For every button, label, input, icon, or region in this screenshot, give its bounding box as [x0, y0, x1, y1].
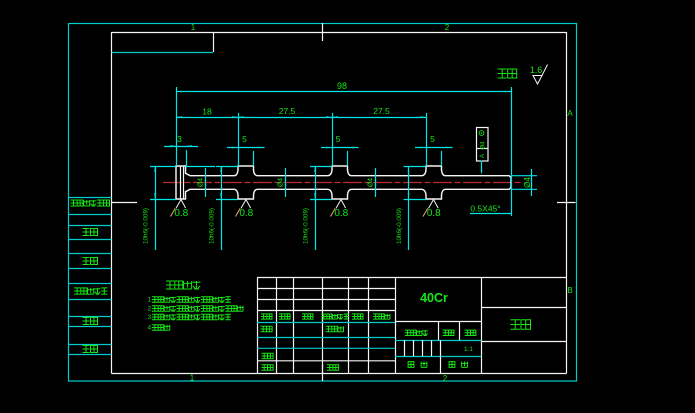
- svg-text:10h6(-0.009): 10h6(-0.009): [303, 208, 310, 244]
- svg-text:27.5: 27.5: [373, 106, 390, 116]
- svg-text:98: 98: [337, 81, 347, 91]
- svg-text:27.5: 27.5: [279, 106, 296, 116]
- svg-text:A: A: [567, 109, 573, 118]
- svg-text:Ø4: Ø4: [368, 178, 375, 187]
- svg-text:3: 3: [177, 134, 182, 144]
- svg-text:1: 1: [190, 374, 195, 383]
- svg-text:0.8: 0.8: [239, 208, 253, 219]
- svg-text:10h6(-0.009): 10h6(-0.009): [209, 208, 216, 244]
- svg-text:0.8: 0.8: [334, 208, 348, 219]
- svg-text:5: 5: [336, 134, 341, 144]
- svg-text:A: A: [480, 154, 486, 158]
- svg-text:Ø4: Ø4: [481, 141, 487, 150]
- svg-text:2: 2: [443, 374, 448, 383]
- svg-text:5: 5: [242, 134, 247, 144]
- svg-text:B: B: [567, 286, 572, 295]
- svg-text:Ø4: Ø4: [523, 177, 532, 188]
- svg-text:0.8: 0.8: [427, 208, 441, 219]
- svg-text:2: 2: [445, 23, 450, 32]
- svg-text:0.8: 0.8: [174, 208, 188, 219]
- svg-text:1:1: 1:1: [464, 346, 473, 353]
- svg-text:5: 5: [430, 134, 435, 144]
- svg-text:18: 18: [202, 107, 212, 117]
- svg-text:40Cr: 40Cr: [420, 291, 448, 305]
- svg-text:Ø4: Ø4: [198, 178, 205, 187]
- svg-text:10h6(-0.009): 10h6(-0.009): [143, 208, 150, 244]
- svg-text:0.5X45°: 0.5X45°: [470, 204, 500, 214]
- svg-text:10h6(-0.009): 10h6(-0.009): [396, 208, 403, 244]
- svg-text:1: 1: [191, 23, 196, 32]
- svg-text:Ø4: Ø4: [278, 178, 285, 187]
- svg-text:1.6: 1.6: [530, 65, 543, 75]
